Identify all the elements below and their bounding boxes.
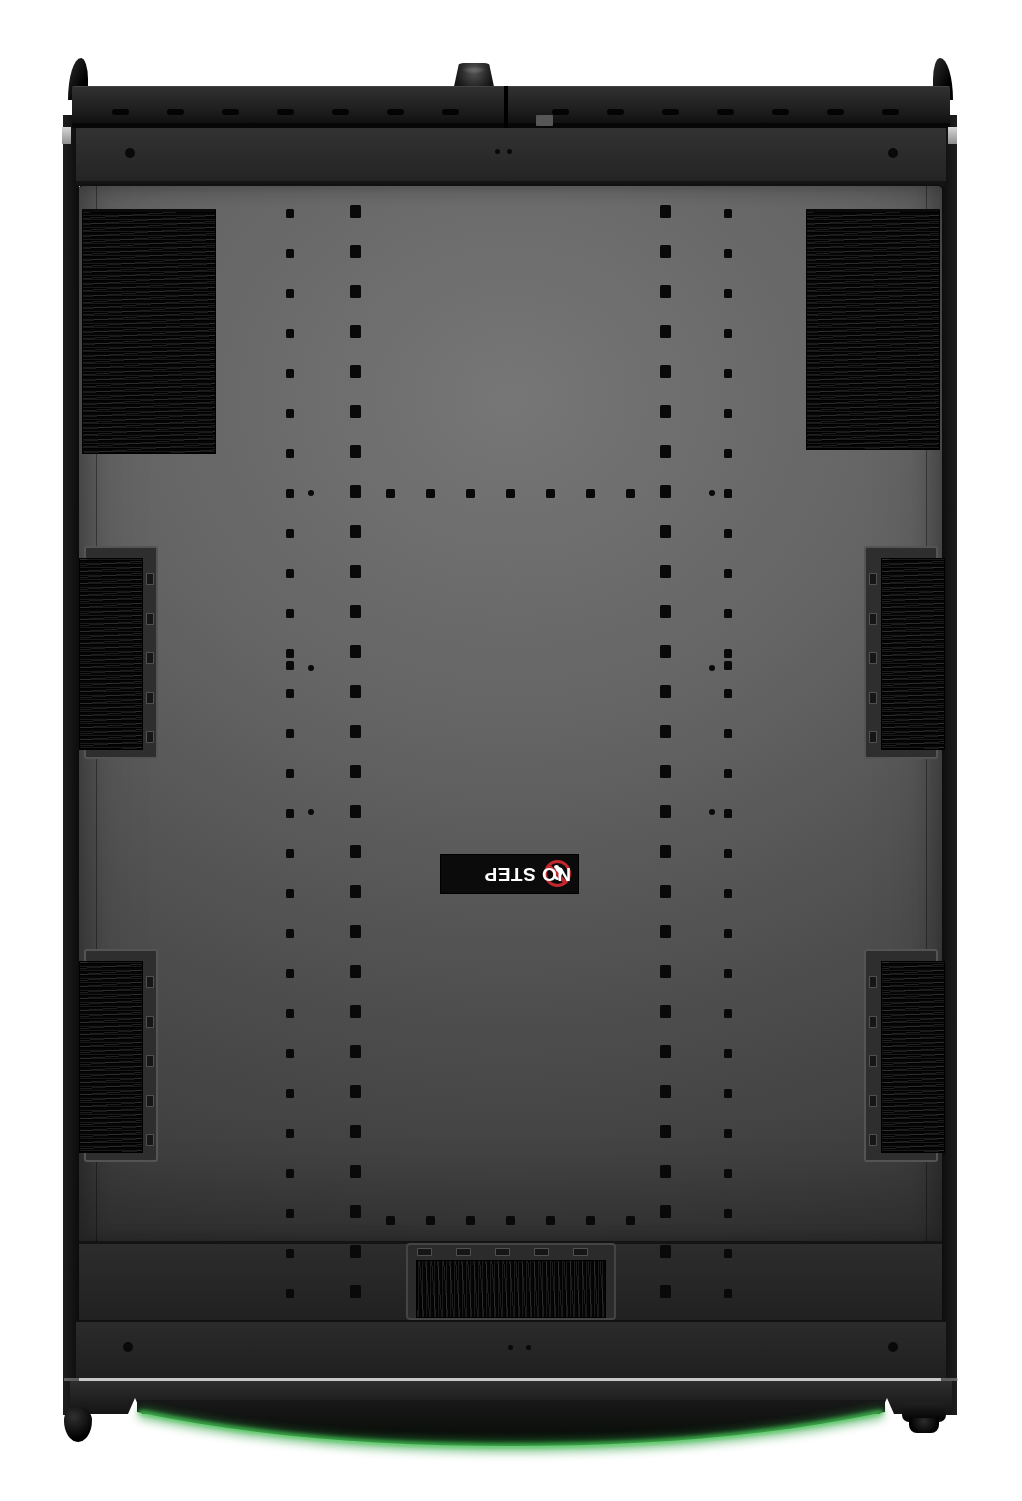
rack-top-view: NO STEP — [0, 0, 1022, 1501]
top-rail — [72, 86, 950, 128]
brush-bristles — [79, 558, 143, 750]
edge-clip-right — [948, 127, 957, 144]
base-skirt-with-led-glow — [0, 1398, 1022, 1472]
latch-tab — [536, 115, 553, 126]
top-band — [76, 128, 946, 186]
edge-clip-left — [62, 127, 71, 144]
bottom-band-lower — [76, 1320, 946, 1378]
brush-bristles — [416, 1260, 606, 1318]
brush-grommet-right-upper — [864, 546, 938, 759]
brush-bristles — [79, 961, 143, 1153]
brush-grommet-top-right — [806, 209, 940, 450]
brush-bristles — [881, 961, 945, 1153]
no-step-text: NO STEP — [484, 863, 571, 885]
brush-grommet-left-lower — [84, 949, 158, 1162]
top-rail-split — [504, 86, 508, 128]
leveling-foot-right — [902, 1402, 946, 1422]
no-step-label: NO STEP — [440, 854, 579, 894]
side-rail-right — [941, 115, 957, 1415]
brush-bristles — [881, 558, 945, 750]
side-rail-left — [63, 115, 79, 1415]
brush-grommet-left-upper — [84, 546, 158, 759]
brush-grommet-bottom-center — [406, 1243, 616, 1320]
brush-grommet-right-lower — [864, 949, 938, 1162]
brush-grommet-top-left — [82, 209, 216, 454]
